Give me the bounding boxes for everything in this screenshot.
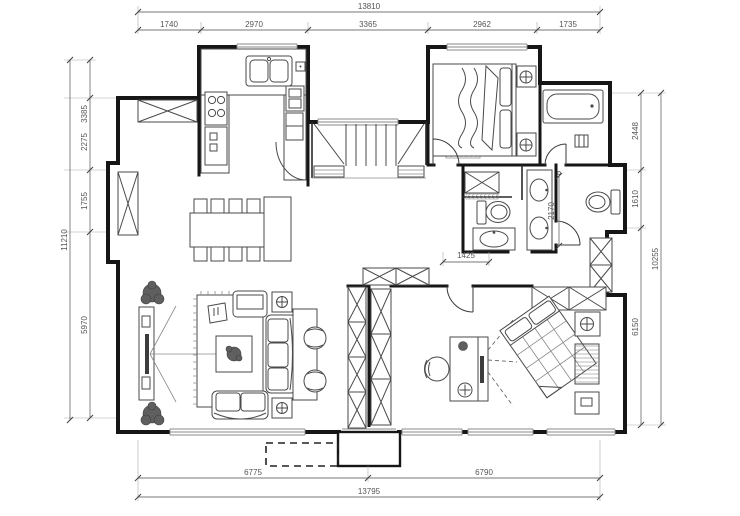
heater-icon: [575, 135, 588, 147]
dim-bottom-seg: 6790: [475, 468, 493, 477]
office-chair: [425, 357, 450, 381]
washbasin-icon: [473, 228, 515, 250]
bathtub-room: [543, 90, 603, 165]
dim-right-total: 10255: [651, 247, 660, 270]
dim-left-seg: 1755: [80, 192, 89, 210]
dim-top-seg: 3365: [359, 20, 377, 29]
nightstand: [575, 312, 600, 336]
staircase: [312, 124, 426, 178]
double-sink-icon: [246, 56, 292, 86]
nightstand: [517, 133, 536, 156]
coffee-table: [216, 336, 252, 372]
side-table: [272, 292, 292, 312]
toilet-icon: [477, 201, 510, 224]
dim-left-total: 11210: [60, 229, 69, 251]
bathtub-icon: [543, 90, 603, 123]
sideboard: [264, 197, 291, 261]
wc-door: [556, 221, 580, 245]
dim-right-seg: 6150: [631, 318, 640, 336]
window: [402, 428, 462, 436]
dim-bath-depth: 2170: [547, 202, 556, 220]
dim-top-seg: 1740: [160, 20, 178, 29]
dim-right-seg: 2448: [631, 122, 640, 140]
wardrobe-icon: [363, 268, 429, 285]
dim-left-seg: 5970: [80, 316, 89, 334]
bedside-unit: [575, 392, 599, 414]
fridge-icon: [286, 113, 303, 140]
sofa-two-seat: [212, 391, 268, 419]
kitchen: [138, 49, 306, 180]
round-chair: [304, 370, 326, 392]
master-bedroom: [433, 64, 536, 165]
study-bedroom: [425, 286, 607, 414]
window: [447, 43, 527, 51]
dim-top-total: 13810: [358, 2, 381, 11]
dining-table: [190, 213, 264, 247]
floor-plan-drawing: 13810 1740 2970 3365 2962 1735 11210 338…: [0, 0, 740, 516]
dresser: [575, 344, 599, 384]
tv-unit: [139, 306, 216, 402]
outlet-icon: [296, 62, 305, 71]
cabinet-column-icon: [348, 287, 366, 428]
plant-icon: [141, 402, 164, 425]
sofa-three-seat: [266, 315, 296, 393]
window: [547, 428, 615, 436]
living-room: [139, 281, 326, 425]
round-chair: [304, 327, 326, 349]
window: [468, 428, 533, 436]
bathtub-door: [545, 144, 566, 165]
dim-top-seg: 1735: [559, 20, 577, 29]
oven-stack-icon: [286, 86, 304, 111]
stove-icon: [205, 92, 227, 125]
floor-cushion: [208, 303, 227, 323]
cabinet-column-icon: [371, 289, 391, 425]
dim-top-seg: 2962: [473, 20, 491, 29]
bay-cabinet-icon: [118, 172, 138, 235]
washing-machine-icon: [465, 172, 499, 199]
dim-left-seg: 3385: [80, 105, 89, 123]
floor-plan-sheet: 13810 1740 2970 3365 2962 1735 11210 338…: [0, 0, 740, 516]
tv-icon: [145, 334, 149, 374]
side-table: [272, 398, 292, 418]
dim-hall-width: 1425: [457, 251, 475, 260]
dim-top-seg: 2970: [245, 20, 263, 29]
dim-right-seg: 1610: [631, 190, 640, 208]
entry-porch: [338, 432, 400, 466]
wc-room: [556, 190, 620, 292]
toilet-icon: [586, 190, 620, 214]
dim-bottom-total: 13795: [358, 487, 381, 496]
wall-cabinet-icon: [138, 100, 197, 122]
dining-area: [190, 197, 291, 261]
study-door: [447, 286, 473, 312]
nightstand: [517, 66, 536, 87]
dishwasher-icon: [205, 127, 227, 165]
bathroom: [465, 170, 552, 250]
dim-left-seg: 2275: [80, 133, 89, 151]
window: [170, 428, 305, 436]
plant-icon: [141, 281, 164, 304]
tall-cabinet-icon: [590, 238, 612, 292]
armchair: [233, 291, 267, 317]
hall-wardrobes: [348, 268, 429, 428]
monitor-icon: [480, 356, 484, 383]
entry-step-dashed: [266, 443, 338, 466]
dim-bottom-seg: 6775: [244, 468, 262, 477]
